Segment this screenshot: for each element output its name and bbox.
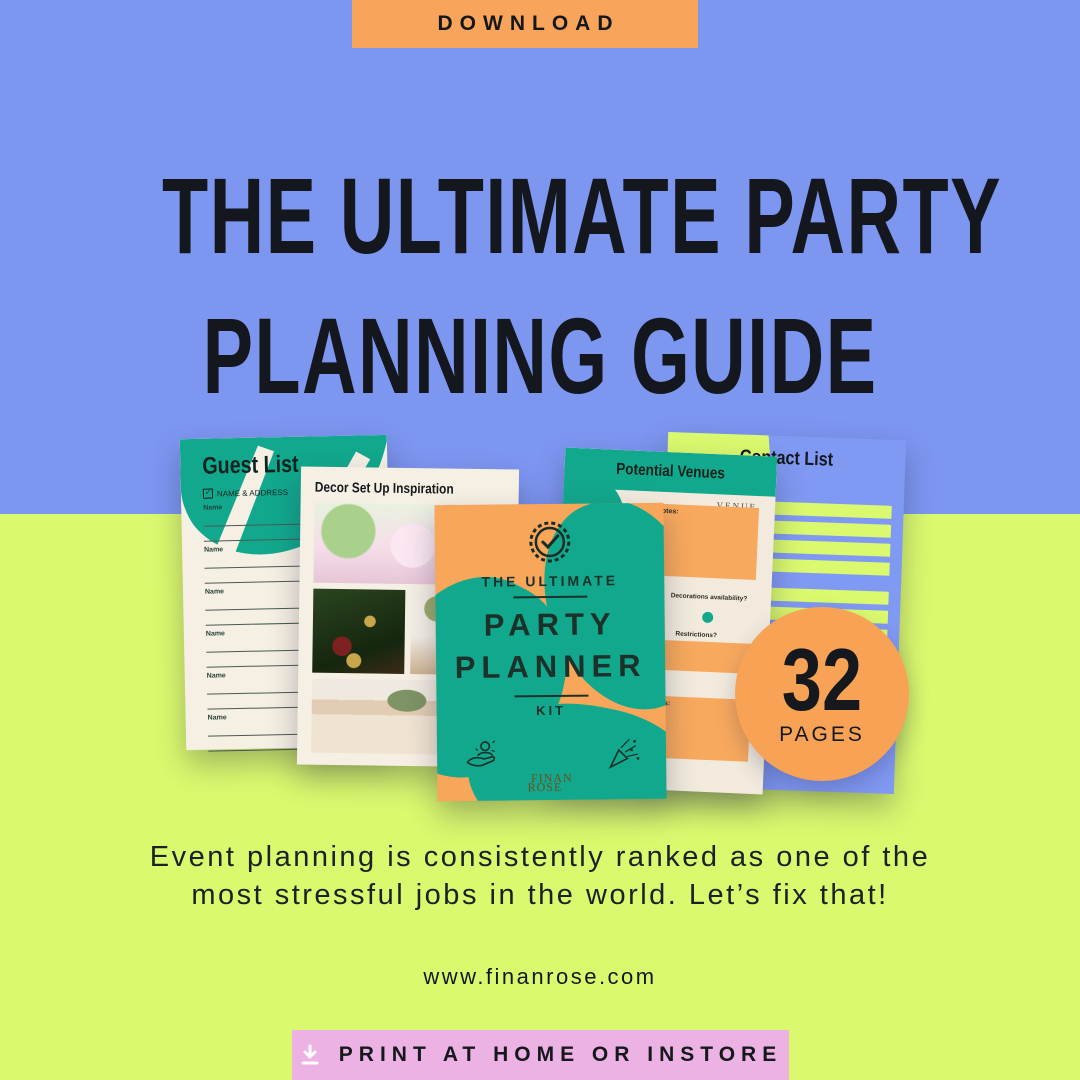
seal-check-icon [525,518,574,567]
cover-content: THE ULTIMATE PARTY PLANNER KIT [434,503,666,801]
cover-icon-row [437,737,666,773]
download-button-label: DOWNLOAD [431,12,620,36]
divider [514,695,588,698]
pages-count-badge: 32 PAGES [735,607,909,781]
venue-question-restrictions: Restrictions? [675,631,717,640]
print-banner-label: PRINT AT HOME OR INSTORE [339,1043,782,1067]
hand-person-icon [463,739,501,771]
cover-title-line-1: PARTY [436,603,665,647]
brand-line-2: ROSE [434,781,666,794]
guest-list-meta-label: NAME & ADDRESS [217,487,288,497]
divider [513,596,587,599]
checkbox-icon: ✓ [203,489,213,499]
print-banner-button[interactable]: PRINT AT HOME OR INSTORE [292,1030,789,1080]
pages-count-number: 32 [782,641,862,719]
brand-logo: FINAN ROSE [437,772,666,793]
download-arrow-icon [299,1044,321,1066]
tagline: Event planning is consistently ranked as… [0,838,1080,914]
party-popper-icon [606,737,640,771]
teal-dot [702,612,713,623]
mockup-cover-party-planner-kit: THE ULTIMATE PARTY PLANNER KIT [434,503,666,801]
promo-graphic: DOWNLOAD THE ULTIMATE PARTY PLANNING GUI… [0,0,1080,1080]
website-url: www.finanrose.com [0,964,1080,990]
guest-list-title: Guest List [202,451,299,481]
download-button[interactable]: DOWNLOAD [352,0,698,48]
headline-line-2: PLANNING GUIDE [162,286,918,426]
cover-subtitle: KIT [437,702,666,719]
guest-list-meta: ✓ NAME & ADDRESS [203,487,288,499]
venue-notes-box: Notes: [648,503,759,580]
venues-title: Potential Venues [616,461,726,484]
tagline-line-1: Event planning is consistently ranked as… [0,838,1080,876]
decor-title: Decor Set Up Inspiration [315,479,454,497]
page-title: THE ULTIMATE PARTY PLANNING GUIDE [0,146,1080,426]
cover-title-line-2: PLANNER [436,645,665,689]
headline-line-1: THE ULTIMATE PARTY [162,146,918,286]
photo-christmas-tree [312,589,405,674]
cover-eyebrow: THE ULTIMATE [435,572,664,590]
tagline-line-2: most stressful jobs in the world. Let’s … [0,876,1080,914]
venue-question-decorations: Decorations availability? [667,592,751,603]
